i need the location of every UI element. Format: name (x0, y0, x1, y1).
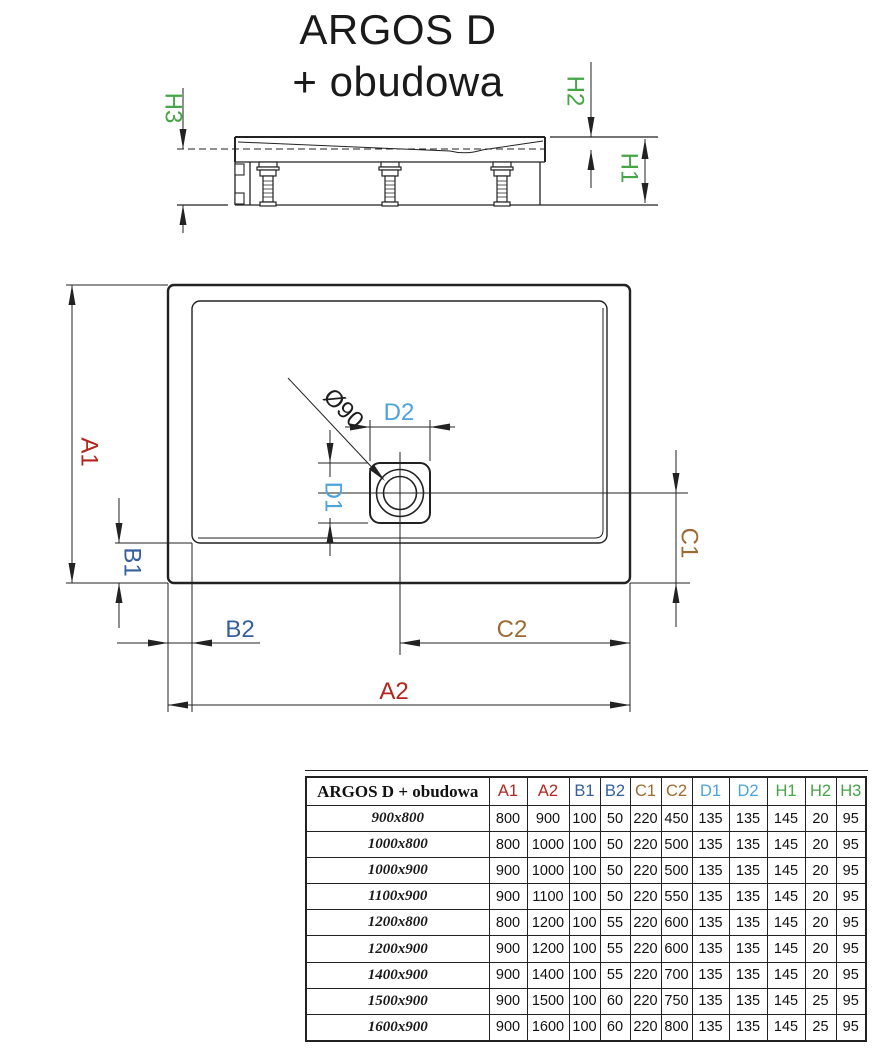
dim-label-h2: H2 (562, 76, 589, 107)
tray-slope-line (238, 141, 543, 153)
value-cell: 95 (836, 1014, 866, 1041)
value-cell: 135 (692, 988, 729, 1014)
value-cell: 145 (767, 858, 805, 884)
dim-label-a1: A1 (76, 437, 103, 466)
value-cell: 1200 (527, 936, 569, 962)
value-cell: 1000 (527, 832, 569, 858)
value-cell: 100 (569, 936, 600, 962)
value-cell: 55 (600, 962, 630, 988)
value-cell: 25 (805, 1014, 836, 1041)
value-cell: 55 (600, 936, 630, 962)
value-cell: 800 (489, 910, 527, 936)
table-header-b2: B2 (600, 777, 630, 806)
value-cell: 145 (767, 910, 805, 936)
value-cell: 135 (729, 988, 767, 1014)
table-row: 1200x8008001200100552206001351351452095 (306, 910, 866, 936)
value-cell: 100 (569, 962, 600, 988)
value-cell: 20 (805, 858, 836, 884)
value-cell: 135 (692, 1014, 729, 1041)
table-row: 1600x9009001600100602208001351351452595 (306, 1014, 866, 1041)
value-cell: 135 (729, 936, 767, 962)
value-cell: 100 (569, 858, 600, 884)
value-cell: 50 (600, 806, 630, 832)
size-cell: 1000x900 (306, 858, 489, 884)
table-header-c1: C1 (630, 777, 661, 806)
dim-label-d1: D1 (320, 482, 347, 513)
table-header-b1: B1 (569, 777, 600, 806)
dim-label-a2: A2 (379, 678, 408, 705)
value-cell: 900 (489, 962, 527, 988)
technical-drawing: H3 H2 H1 A1 B1 B2 C2 A2 C1 D2 D1 Ø90 (0, 0, 880, 770)
value-cell: 95 (836, 884, 866, 910)
value-cell: 135 (729, 962, 767, 988)
size-cell: 900x800 (306, 806, 489, 832)
value-cell: 800 (661, 1014, 692, 1041)
value-cell: 135 (692, 936, 729, 962)
value-cell: 450 (661, 806, 692, 832)
value-cell: 1200 (527, 910, 569, 936)
value-cell: 220 (630, 858, 661, 884)
dim-label-h1: H1 (616, 153, 643, 184)
value-cell: 100 (569, 832, 600, 858)
size-cell: 1400x900 (306, 962, 489, 988)
value-cell: 1000 (527, 858, 569, 884)
dimensions-table: ARGOS D + obudowa A1A2B1B2C1C2D1D2H1H2H3… (305, 776, 867, 1042)
panel-notch (235, 193, 244, 204)
table-top-rule (305, 770, 868, 771)
product-dimension-sheet: ARGOS D + obudowa (0, 0, 880, 1050)
adjustable-foot (379, 162, 401, 206)
value-cell: 100 (569, 806, 600, 832)
value-cell: 900 (489, 936, 527, 962)
size-cell: 1100x900 (306, 884, 489, 910)
table-row: 1500x9009001500100602207501351351452595 (306, 988, 866, 1014)
table-row: 1000x9009001000100502205001351351452095 (306, 858, 866, 884)
table-header-a2: A2 (527, 777, 569, 806)
table-row: 1100x9009001100100502205501351351452095 (306, 884, 866, 910)
value-cell: 135 (729, 832, 767, 858)
value-cell: 900 (489, 858, 527, 884)
value-cell: 800 (489, 806, 527, 832)
value-cell: 500 (661, 832, 692, 858)
value-cell: 95 (836, 962, 866, 988)
value-cell: 220 (630, 962, 661, 988)
value-cell: 20 (805, 962, 836, 988)
value-cell: 135 (692, 806, 729, 832)
value-cell: 900 (527, 806, 569, 832)
value-cell: 220 (630, 884, 661, 910)
value-cell: 135 (729, 1014, 767, 1041)
tray-profile-lines (177, 137, 658, 205)
dim-label-b2: B2 (225, 616, 254, 643)
value-cell: 220 (630, 806, 661, 832)
value-cell: 20 (805, 832, 836, 858)
size-cell: 1200x800 (306, 910, 489, 936)
value-cell: 145 (767, 962, 805, 988)
size-cell: 1600x900 (306, 1014, 489, 1041)
value-cell: 600 (661, 910, 692, 936)
value-cell: 145 (767, 884, 805, 910)
value-cell: 220 (630, 910, 661, 936)
value-cell: 700 (661, 962, 692, 988)
dim-label-b1: B1 (119, 547, 146, 576)
value-cell: 600 (661, 936, 692, 962)
table-row: 1000x8008001000100502205001351351452095 (306, 832, 866, 858)
value-cell: 20 (805, 884, 836, 910)
dim-label-d2: D2 (384, 399, 415, 426)
table-header-h3: H3 (836, 777, 866, 806)
table-header-d1: D1 (692, 777, 729, 806)
value-cell: 100 (569, 1014, 600, 1041)
value-cell: 145 (767, 806, 805, 832)
table-header-c2: C2 (661, 777, 692, 806)
value-cell: 135 (729, 806, 767, 832)
value-cell: 900 (489, 884, 527, 910)
dim-label-c1: C1 (676, 528, 703, 559)
value-cell: 100 (569, 988, 600, 1014)
adjustable-foot (257, 162, 279, 206)
value-cell: 100 (569, 910, 600, 936)
value-cell: 135 (692, 962, 729, 988)
value-cell: 800 (489, 832, 527, 858)
value-cell: 550 (661, 884, 692, 910)
value-cell: 900 (489, 988, 527, 1014)
value-cell: 1400 (527, 962, 569, 988)
table-row: 1400x9009001400100552207001351351452095 (306, 962, 866, 988)
value-cell: 50 (600, 858, 630, 884)
value-cell: 1500 (527, 988, 569, 1014)
value-cell: 220 (630, 832, 661, 858)
value-cell: 145 (767, 1014, 805, 1041)
value-cell: 900 (489, 1014, 527, 1041)
size-cell: 1000x800 (306, 832, 489, 858)
value-cell: 1600 (527, 1014, 569, 1041)
value-cell: 750 (661, 988, 692, 1014)
table-header-product: ARGOS D + obudowa (306, 777, 489, 806)
dim-label-h3: H3 (160, 93, 187, 124)
value-cell: 220 (630, 936, 661, 962)
value-cell: 95 (836, 936, 866, 962)
plan-dim-lines (66, 285, 690, 712)
table-header-h2: H2 (805, 777, 836, 806)
value-cell: 145 (767, 988, 805, 1014)
value-cell: 135 (692, 858, 729, 884)
value-cell: 95 (836, 858, 866, 884)
value-cell: 20 (805, 806, 836, 832)
dim-label-c2: C2 (497, 616, 528, 643)
value-cell: 500 (661, 858, 692, 884)
table-header-a1: A1 (489, 777, 527, 806)
value-cell: 95 (836, 806, 866, 832)
size-cell: 1500x900 (306, 988, 489, 1014)
value-cell: 20 (805, 910, 836, 936)
value-cell: 50 (600, 884, 630, 910)
value-cell: 135 (692, 832, 729, 858)
adjustable-foot (491, 162, 513, 206)
value-cell: 95 (836, 988, 866, 1014)
value-cell: 145 (767, 832, 805, 858)
value-cell: 95 (836, 832, 866, 858)
value-cell: 25 (805, 988, 836, 1014)
value-cell: 55 (600, 910, 630, 936)
panel-notch (235, 164, 244, 175)
value-cell: 145 (767, 936, 805, 962)
value-cell: 220 (630, 988, 661, 1014)
table-header-d2: D2 (729, 777, 767, 806)
value-cell: 95 (836, 910, 866, 936)
size-cell: 1200x900 (306, 936, 489, 962)
table-header-row: ARGOS D + obudowa A1A2B1B2C1C2D1D2H1H2H3 (306, 777, 866, 806)
value-cell: 135 (729, 910, 767, 936)
dimension-arrowheads (69, 117, 680, 709)
value-cell: 60 (600, 1014, 630, 1041)
plan-view (66, 285, 690, 712)
table-row: 900x800800900100502204501351351452095 (306, 806, 866, 832)
value-cell: 135 (729, 884, 767, 910)
value-cell: 220 (630, 1014, 661, 1041)
value-cell: 135 (692, 884, 729, 910)
value-cell: 135 (729, 858, 767, 884)
value-cell: 60 (600, 988, 630, 1014)
value-cell: 1100 (527, 884, 569, 910)
value-cell: 100 (569, 884, 600, 910)
table-row: 1200x9009001200100552206001351351452095 (306, 936, 866, 962)
table-header-h1: H1 (767, 777, 805, 806)
value-cell: 135 (692, 910, 729, 936)
value-cell: 20 (805, 936, 836, 962)
value-cell: 50 (600, 832, 630, 858)
